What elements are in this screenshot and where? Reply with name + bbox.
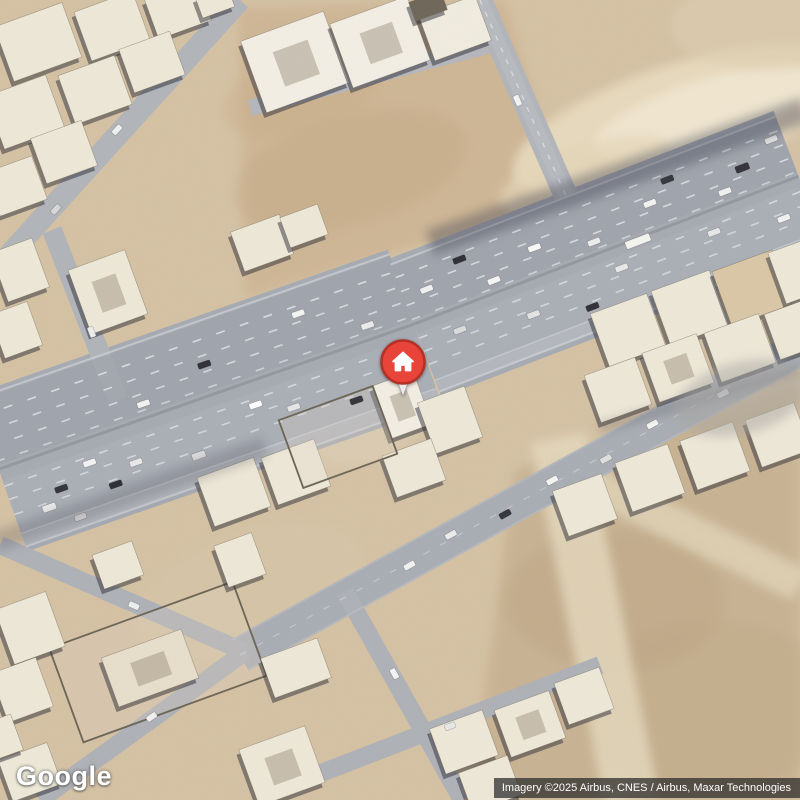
map-attribution: Imagery ©2025 Airbus, CNES / Airbus, Max… bbox=[494, 778, 800, 798]
satellite-map[interactable]: Google Imagery ©2025 Airbus, CNES / Airb… bbox=[0, 0, 800, 800]
property-marker[interactable] bbox=[379, 339, 427, 401]
google-logo[interactable]: Google bbox=[16, 761, 112, 792]
